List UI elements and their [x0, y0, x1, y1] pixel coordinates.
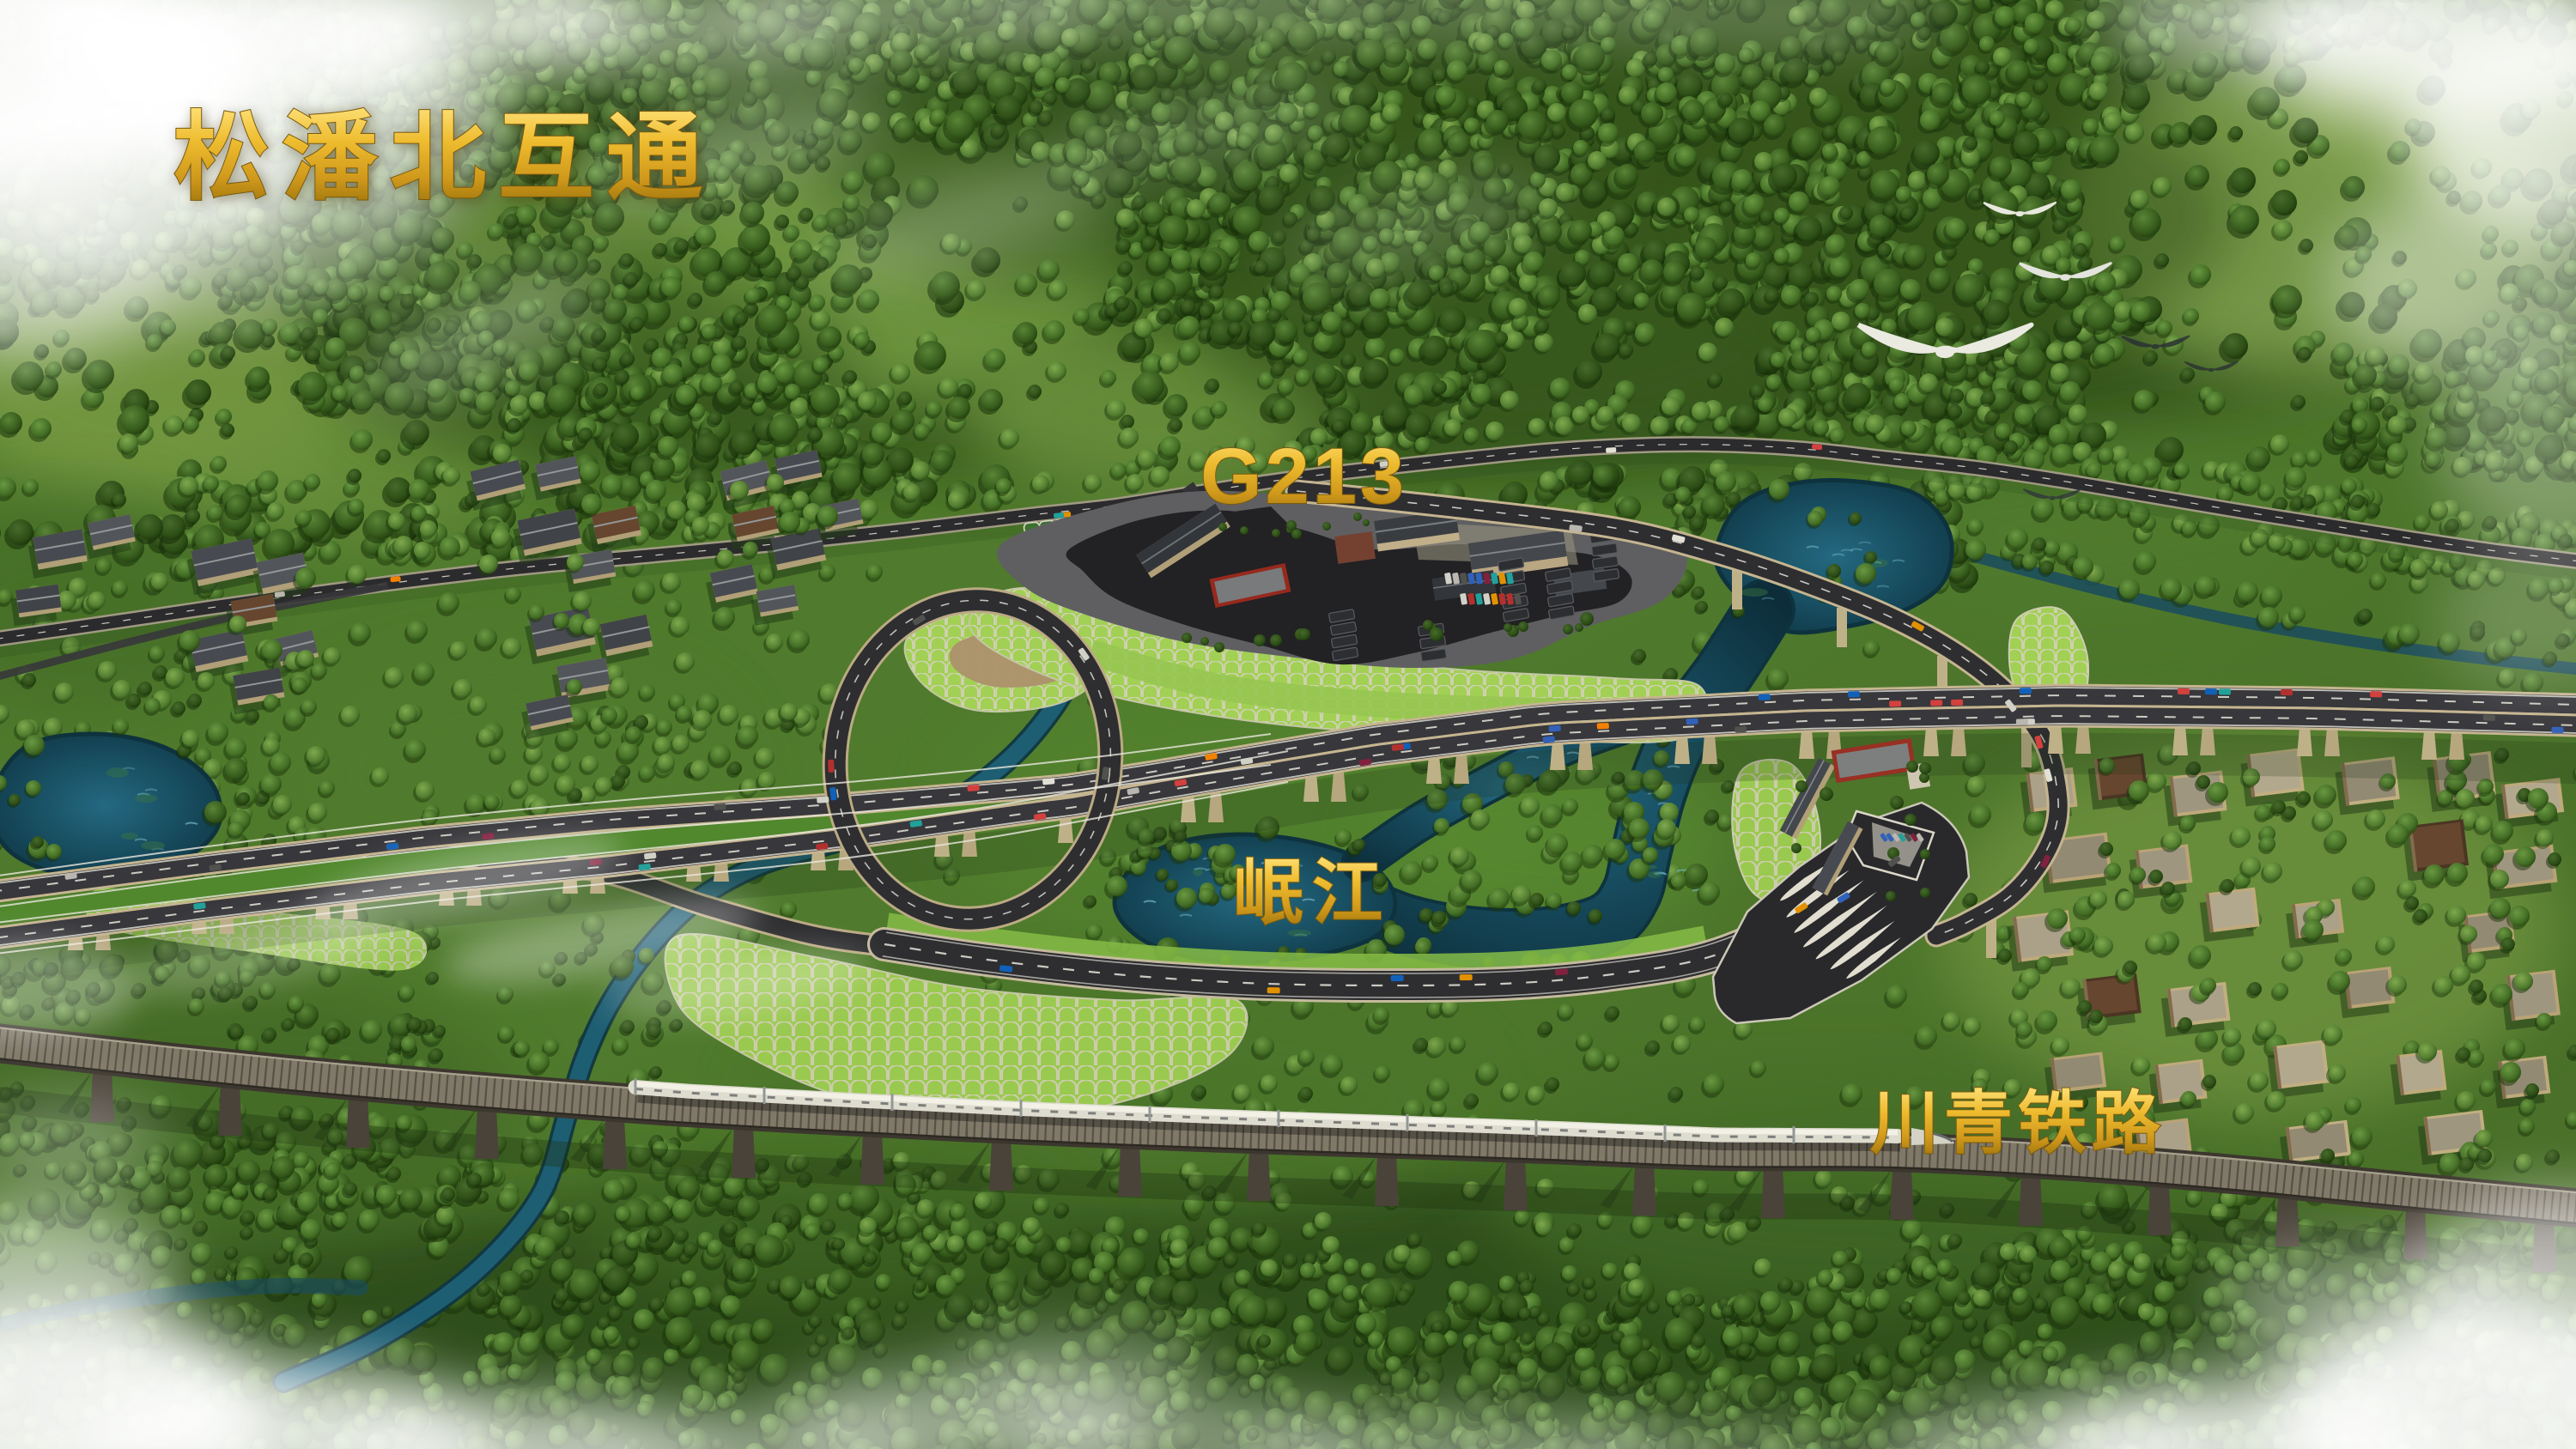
svg-text:松潘北互通: 松潘北互通 — [173, 104, 714, 211]
svg-text:岷江: 岷江 — [1233, 854, 1391, 932]
svg-text:川青铁路: 川青铁路 — [1870, 1085, 2166, 1161]
svg-text:G213: G213 — [1200, 433, 1407, 520]
